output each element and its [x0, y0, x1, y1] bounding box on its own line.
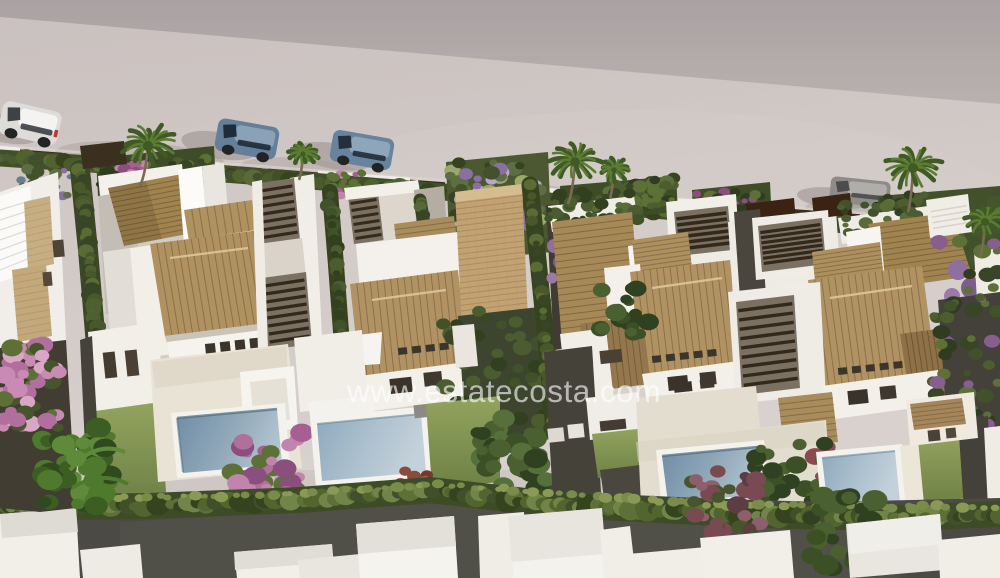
svg-text:www.estatecosta.com: www.estatecosta.com [346, 373, 661, 409]
